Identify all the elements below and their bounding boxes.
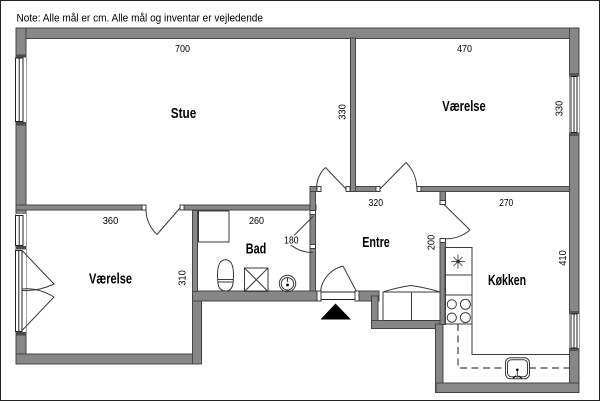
svg-text:Værelse: Værelse — [442, 99, 486, 115]
svg-text:700: 700 — [175, 44, 190, 55]
svg-text:330: 330 — [555, 100, 566, 116]
svg-text:330: 330 — [338, 104, 349, 120]
svg-text:470: 470 — [457, 44, 472, 55]
svg-text:Stue: Stue — [171, 106, 197, 122]
svg-text:360: 360 — [103, 216, 119, 227]
svg-text:180: 180 — [284, 236, 299, 247]
svg-text:Note: Alle mål er cm. Alle mål: Note: Alle mål er cm. Alle mål og invent… — [17, 13, 264, 25]
svg-text:Køkken: Køkken — [488, 273, 526, 289]
svg-text:260: 260 — [249, 216, 264, 227]
svg-text:270: 270 — [499, 198, 513, 209]
svg-text:320: 320 — [369, 198, 384, 209]
svg-text:Værelse: Værelse — [89, 272, 132, 288]
svg-text:Bad: Bad — [246, 242, 267, 258]
svg-text:Entre: Entre — [362, 235, 390, 251]
svg-text:200: 200 — [427, 234, 438, 250]
svg-text:410: 410 — [558, 250, 569, 266]
svg-text:310: 310 — [178, 270, 189, 286]
